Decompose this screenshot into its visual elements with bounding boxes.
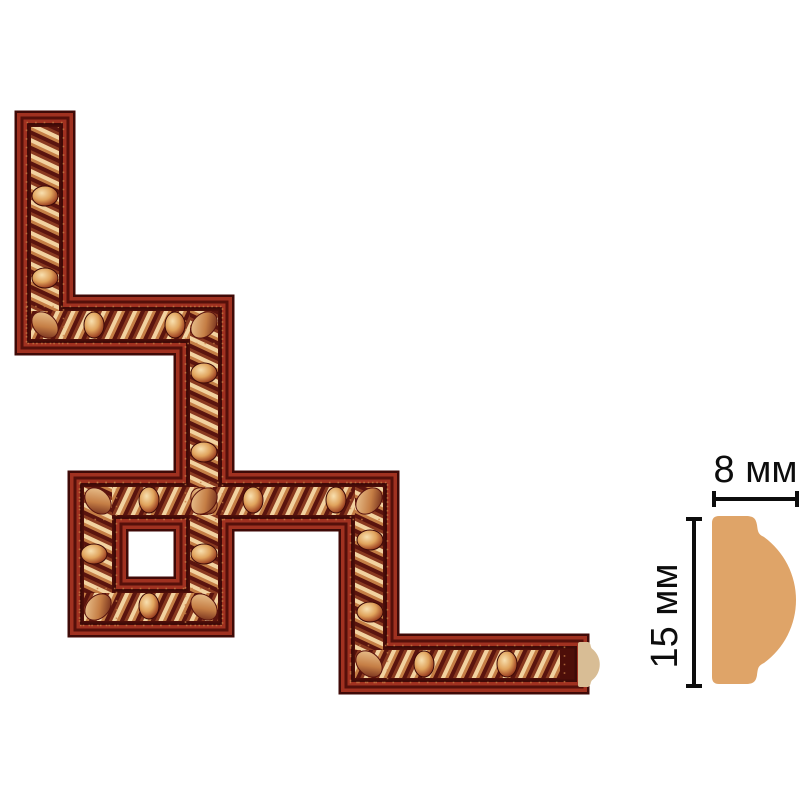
end-cap-shape xyxy=(578,642,600,687)
height-dimension-line xyxy=(686,517,702,688)
bead xyxy=(497,651,517,677)
bead xyxy=(139,487,159,513)
rope-segment xyxy=(190,311,218,621)
width-dimension-line xyxy=(712,491,799,507)
profile-cross-section xyxy=(712,516,796,684)
molding-end-cap xyxy=(578,642,600,687)
bead xyxy=(326,487,346,513)
rope-segment xyxy=(31,311,218,339)
bead xyxy=(139,593,159,619)
bead xyxy=(84,312,104,338)
bead xyxy=(357,602,383,622)
bead xyxy=(414,651,434,677)
dimension-tick xyxy=(795,491,799,507)
bead xyxy=(165,312,185,338)
dimension-line xyxy=(692,517,696,688)
profile-shape xyxy=(712,516,796,684)
bead xyxy=(191,442,217,462)
rope-segment xyxy=(355,650,560,678)
bead xyxy=(32,186,58,206)
width-dimension-label: 8 мм xyxy=(706,450,805,490)
bead xyxy=(243,487,263,513)
height-dimension-label: 15 мм xyxy=(645,526,685,706)
bead xyxy=(191,363,217,383)
dimension-tick xyxy=(686,684,702,688)
bead xyxy=(357,530,383,550)
bead xyxy=(32,268,58,288)
product-image: 8 мм 15 мм xyxy=(0,0,806,806)
bead xyxy=(191,544,217,564)
rope-segment xyxy=(355,487,383,678)
dimension-line xyxy=(712,497,799,501)
bead xyxy=(81,544,107,564)
